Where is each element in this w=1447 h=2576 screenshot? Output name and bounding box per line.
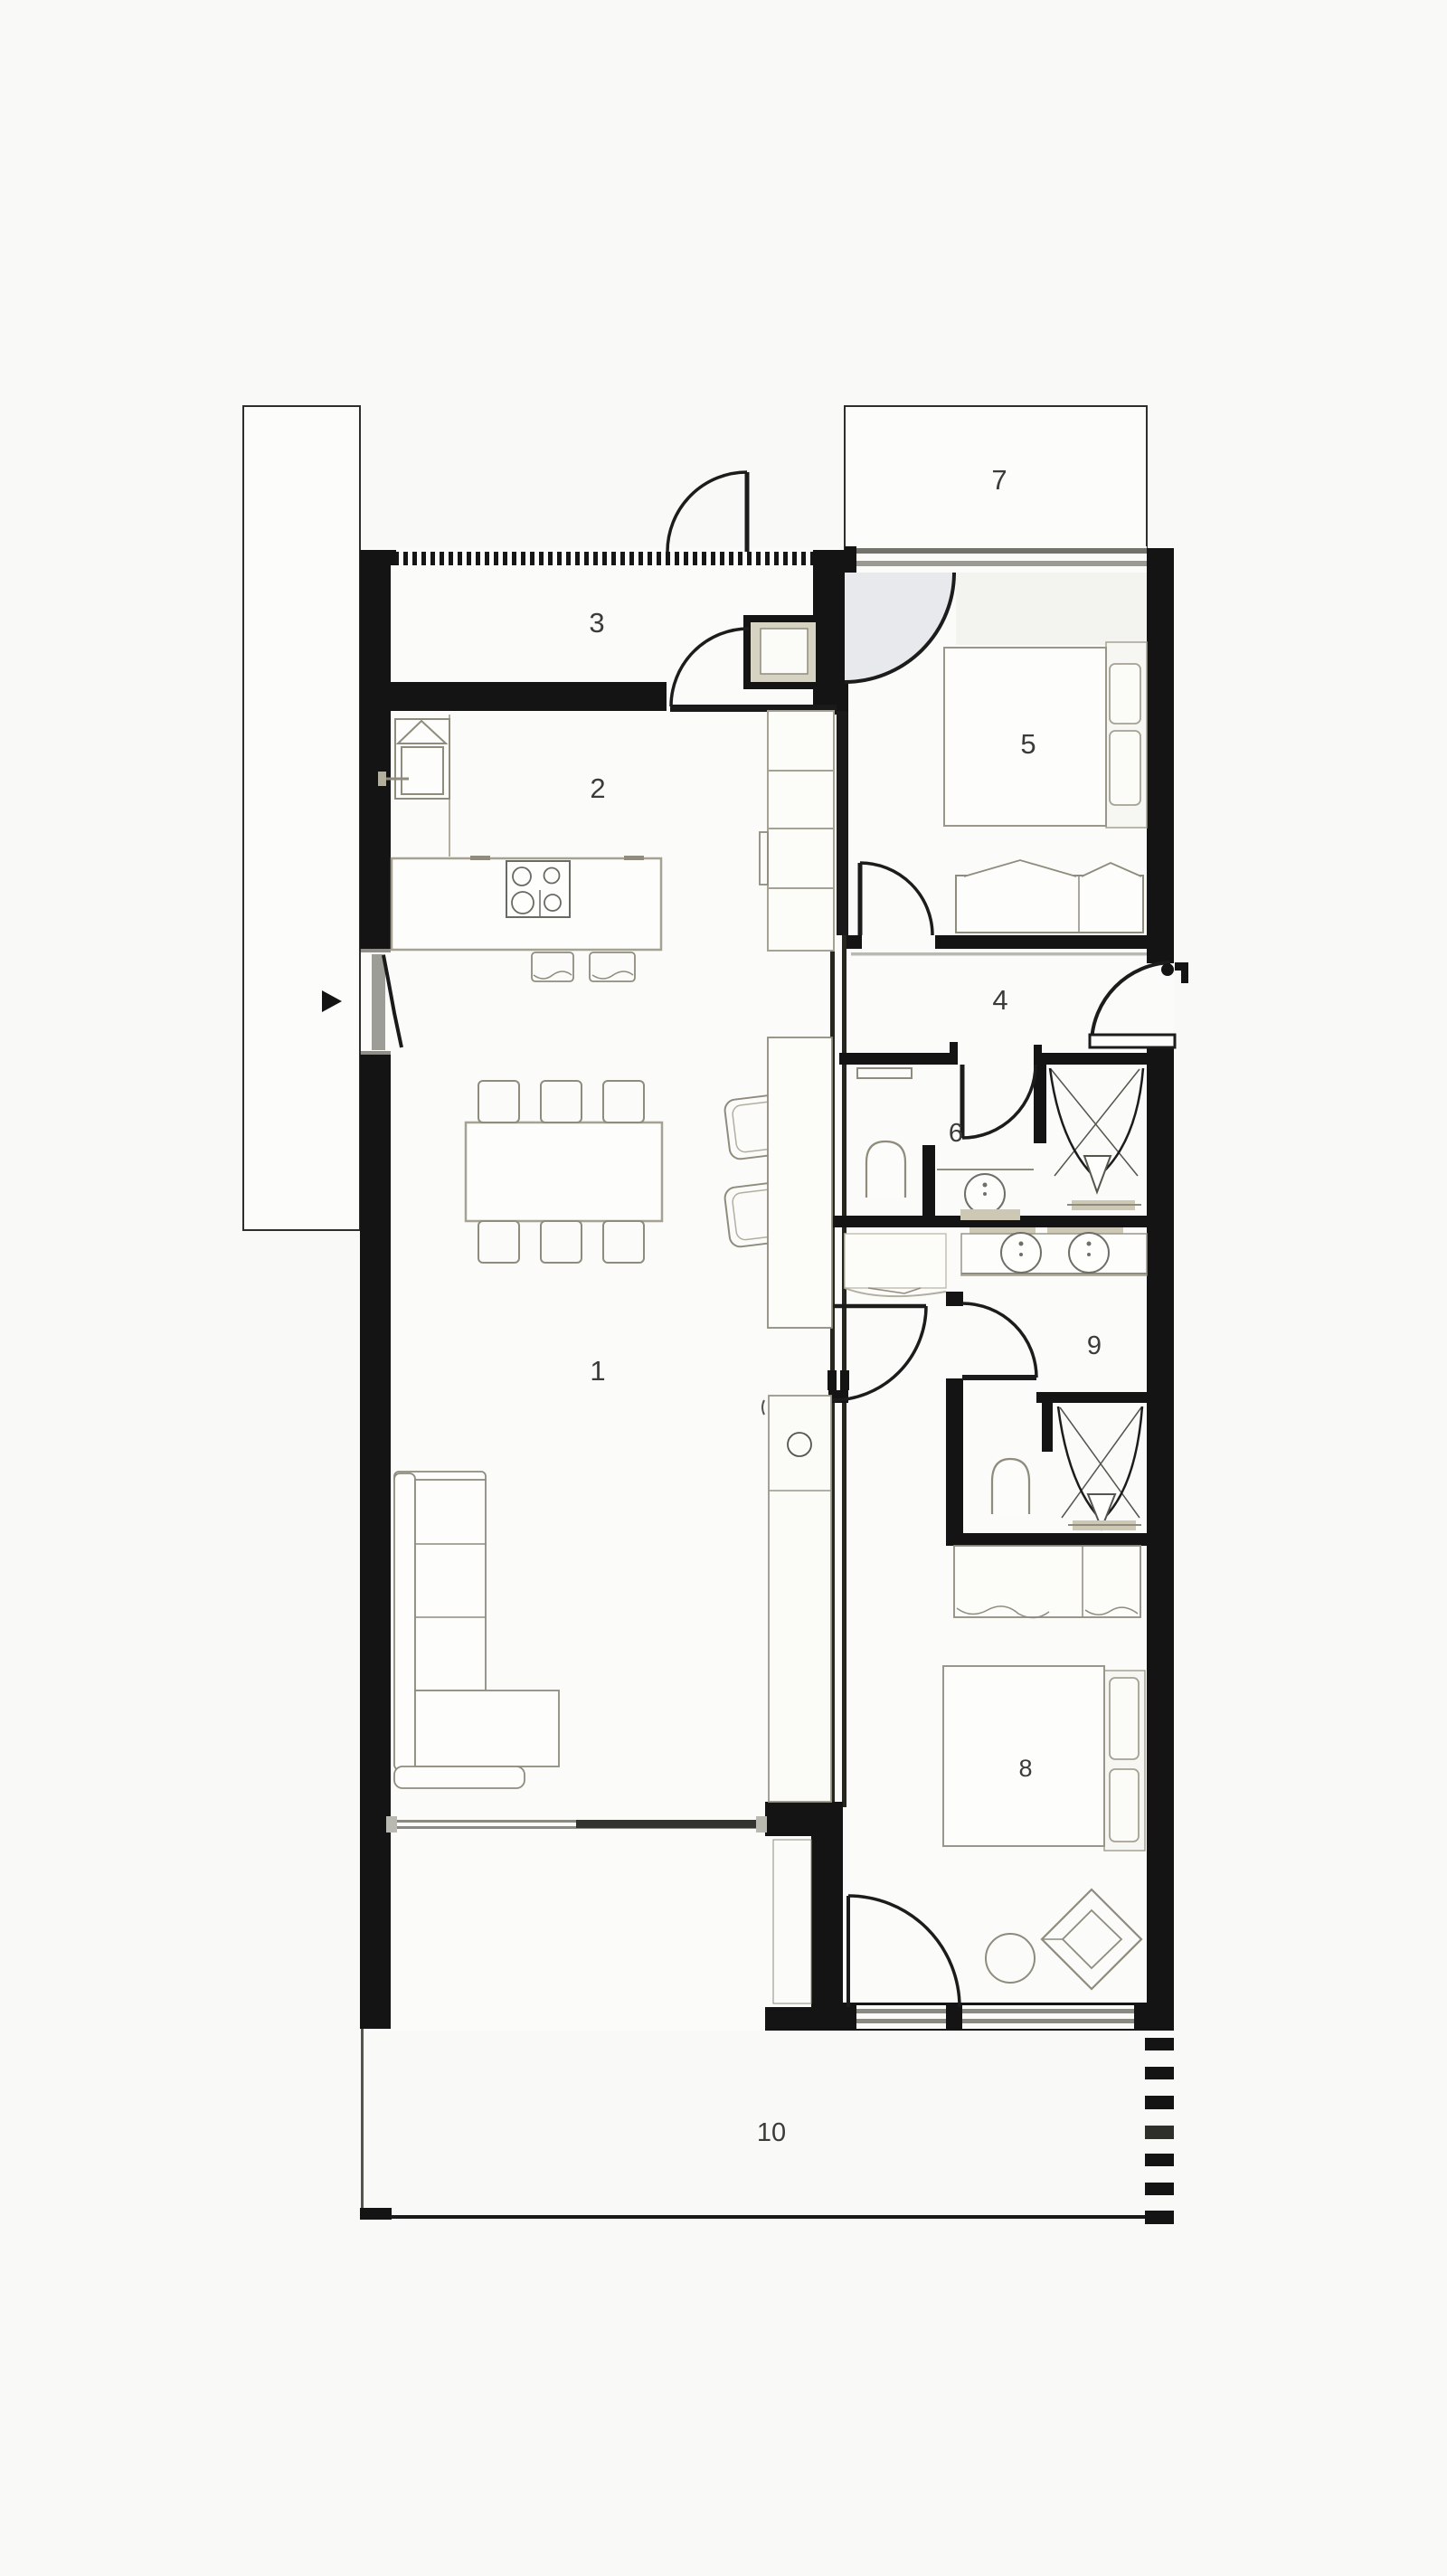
svg-text:7: 7 bbox=[991, 464, 1007, 496]
svg-text:8: 8 bbox=[1018, 1755, 1032, 1782]
svg-text:6: 6 bbox=[949, 1119, 963, 1148]
svg-text:2: 2 bbox=[590, 772, 605, 804]
svg-text:5: 5 bbox=[1020, 728, 1036, 760]
svg-text:10: 10 bbox=[757, 2118, 786, 2147]
svg-text:1: 1 bbox=[590, 1355, 605, 1387]
svg-text:3: 3 bbox=[589, 607, 604, 639]
svg-text:4: 4 bbox=[992, 984, 1007, 1016]
svg-text:9: 9 bbox=[1087, 1331, 1102, 1360]
